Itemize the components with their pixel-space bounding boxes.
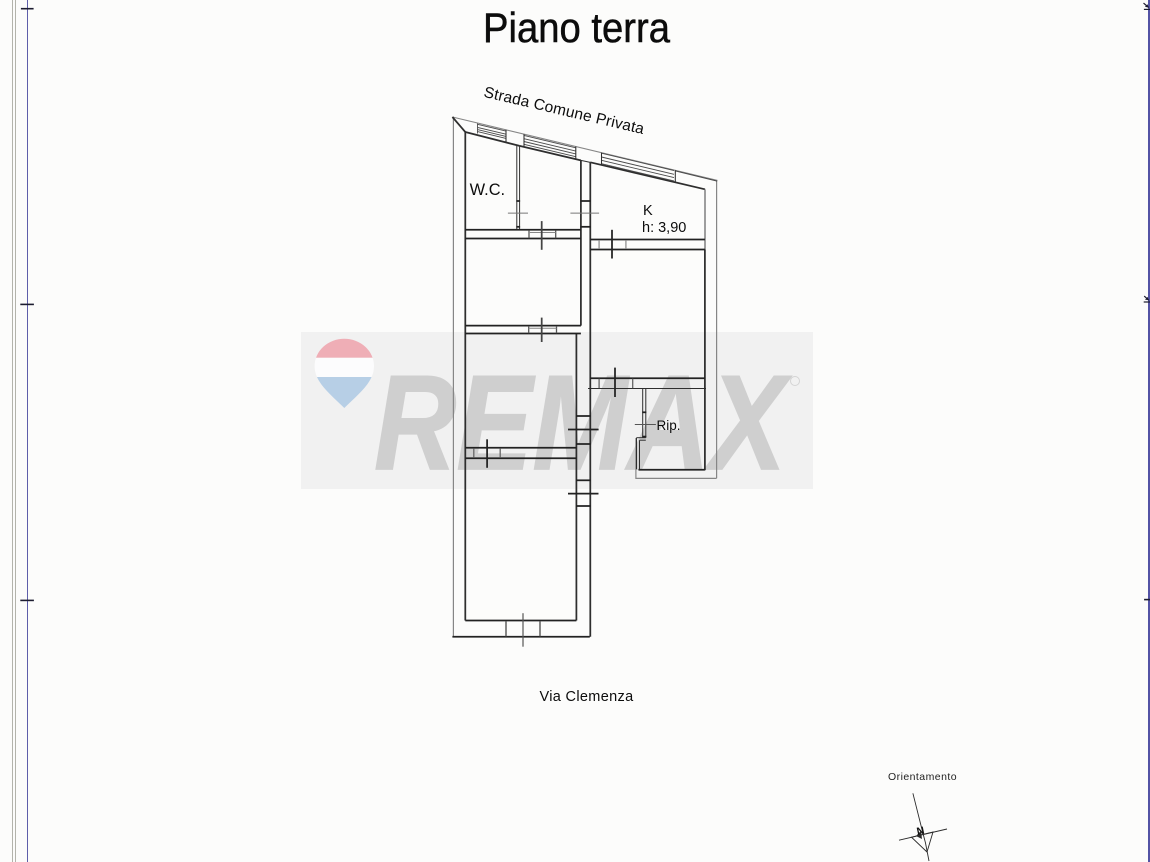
svg-text:N: N (916, 825, 926, 838)
